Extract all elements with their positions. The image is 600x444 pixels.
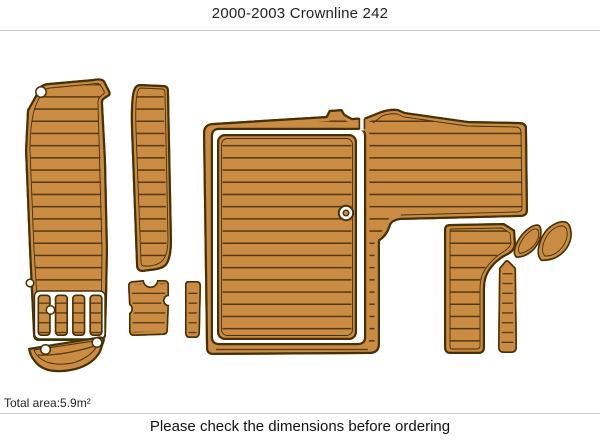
hatch-latch-pin	[343, 210, 349, 216]
deck-pad-diagram	[0, 0, 600, 444]
grommet-hole	[46, 306, 54, 314]
grommet-hole	[92, 338, 102, 348]
product-image: 2000-2003 Crownline 242	[0, 0, 600, 444]
footer-note: Please check the dimensions before order…	[0, 418, 600, 435]
bottom-separator	[0, 413, 600, 414]
bow-wing-pad-large	[537, 221, 572, 261]
swim-grate-slats	[35, 291, 106, 339]
edge-notch-hole	[26, 279, 34, 287]
total-area-label: Total area:5.9m²	[4, 396, 91, 410]
grommet-hole	[41, 345, 51, 355]
bow-center-strip-pad	[496, 258, 520, 356]
cockpit-hatch-pad	[215, 132, 361, 344]
swim-step-pad	[28, 336, 105, 372]
grommet-hole	[36, 87, 46, 97]
notched-step-pad	[126, 278, 172, 338]
side-walkway-pad	[128, 80, 176, 276]
small-strip-pad	[183, 279, 203, 340]
